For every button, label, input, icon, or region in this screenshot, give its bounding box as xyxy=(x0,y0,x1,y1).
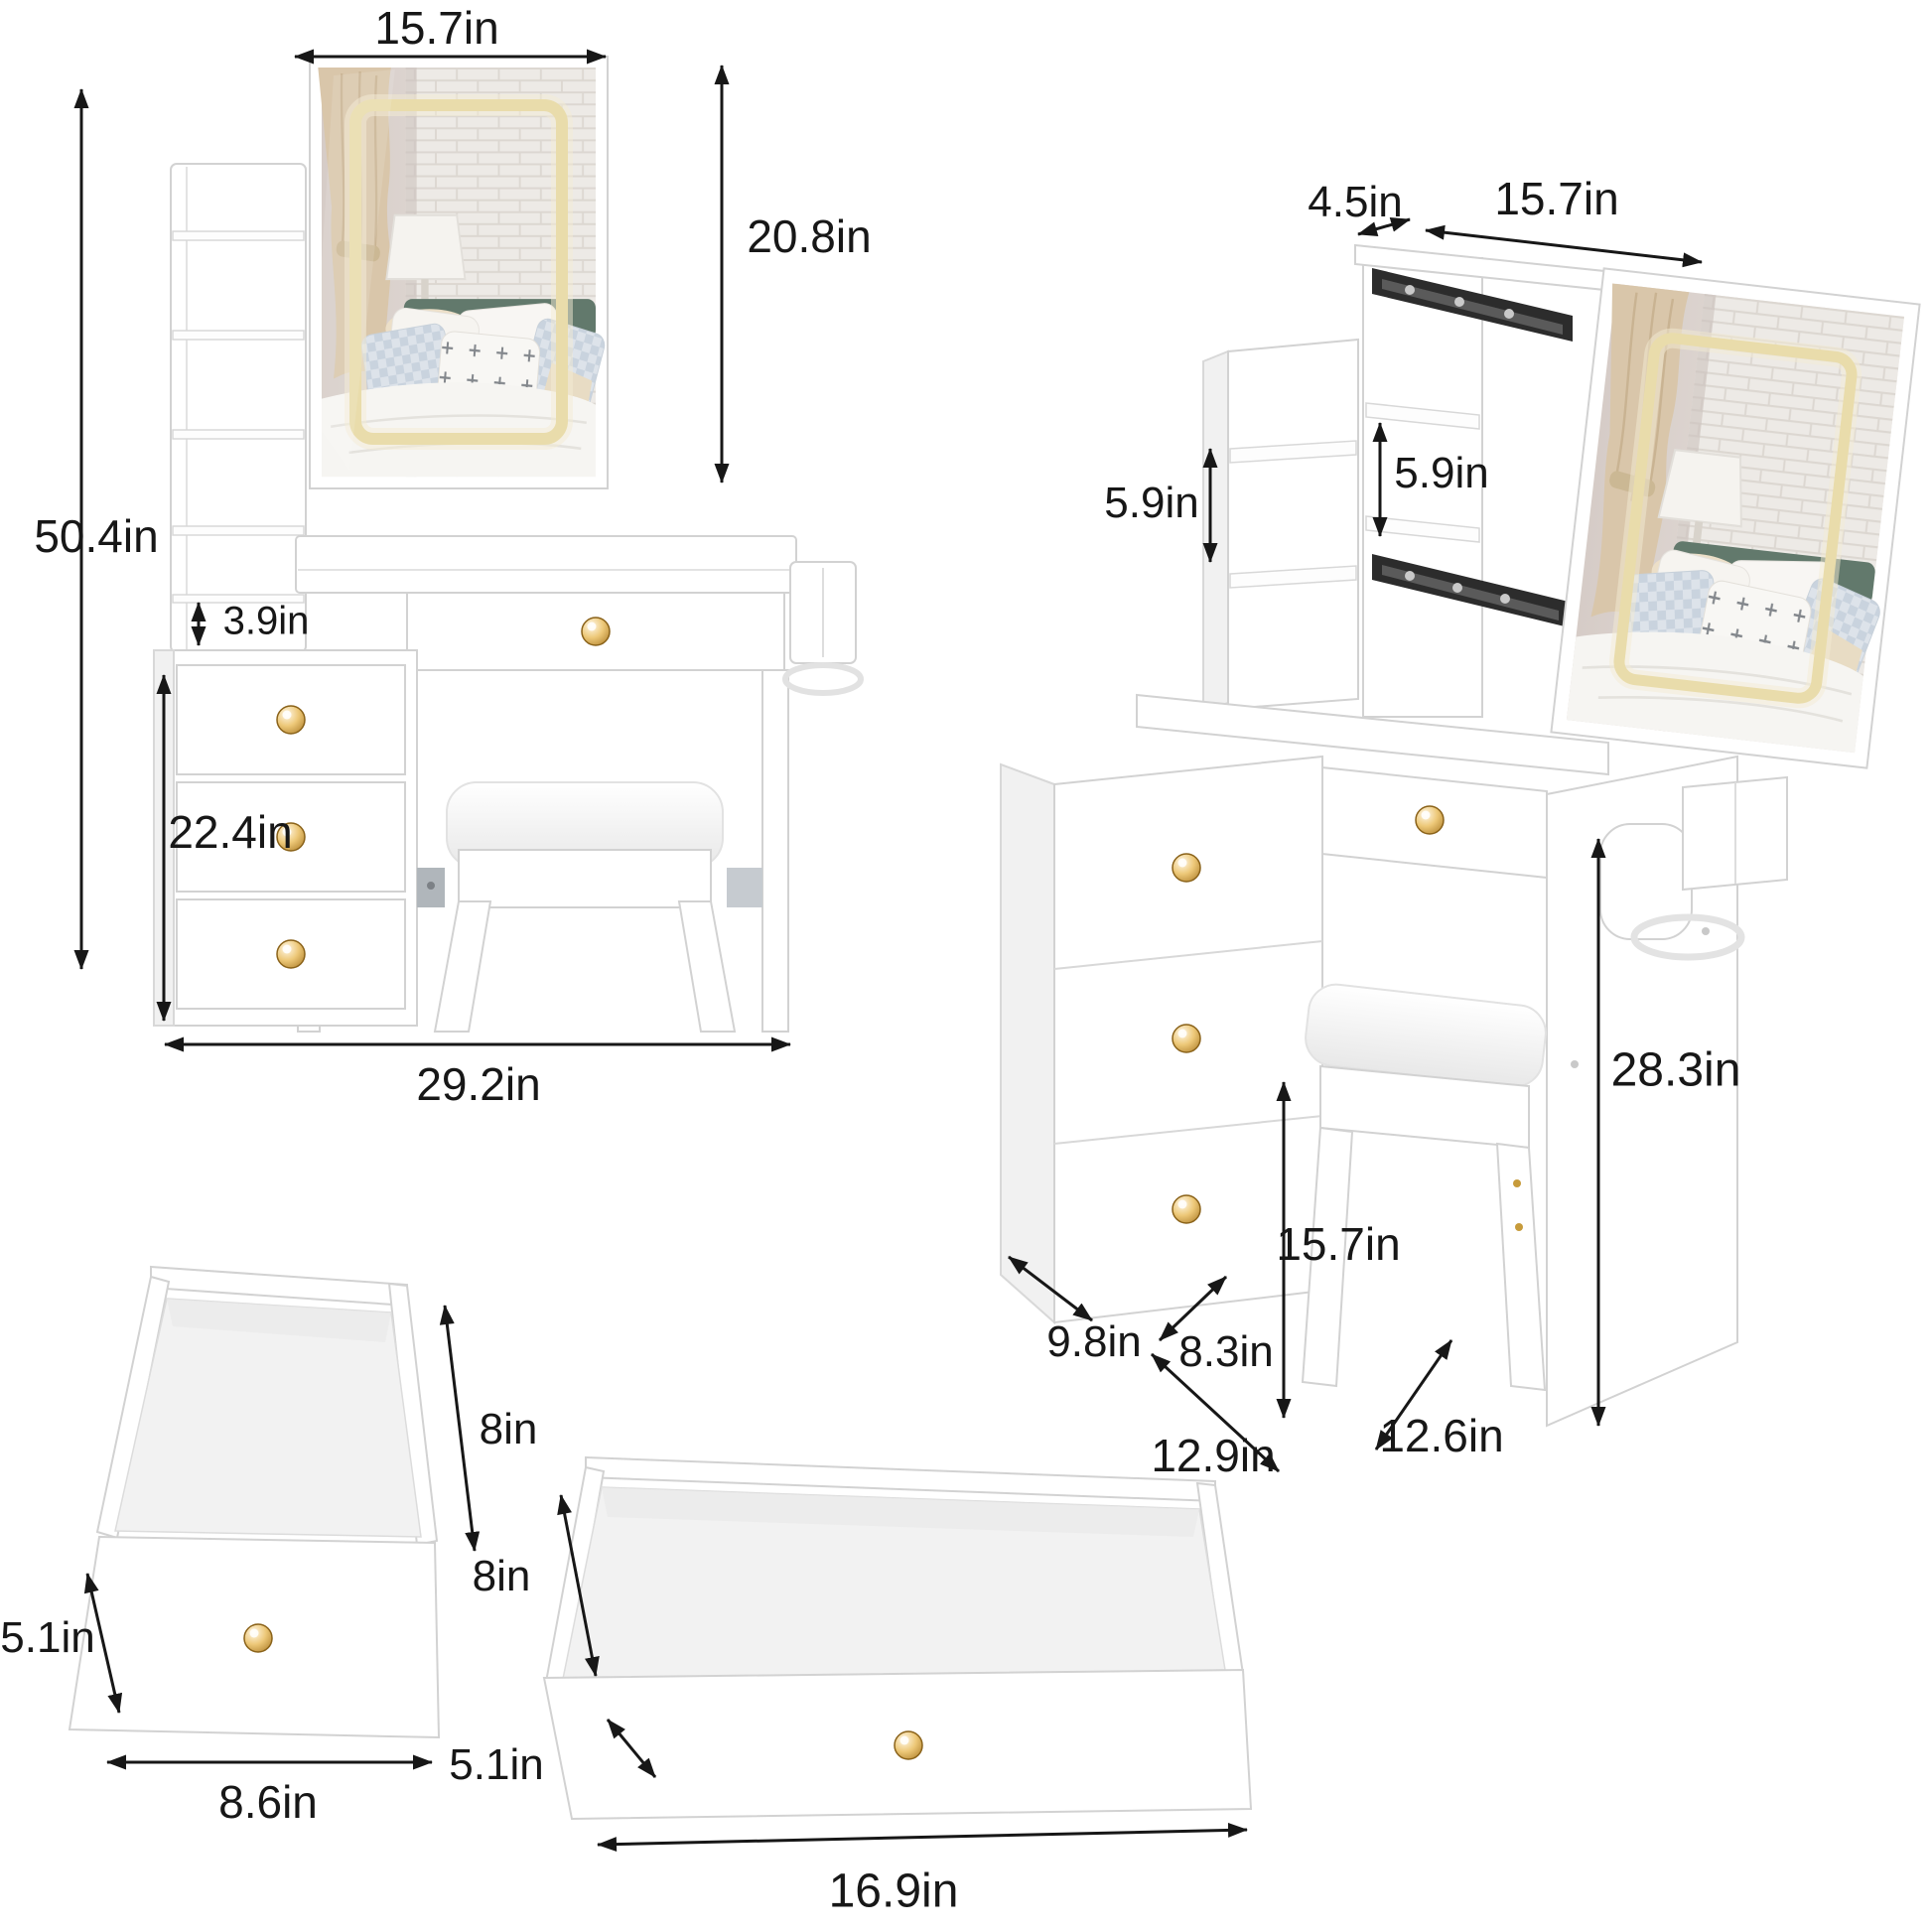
dim-label-large-drawer-depth: 8in xyxy=(473,1552,531,1601)
dim-label-side-left-shelf-gap: 5.9in xyxy=(1104,479,1198,528)
diagram-art xyxy=(0,0,1932,1932)
dim-label-side-panel-depth: 12.6in xyxy=(1379,1409,1503,1462)
tower-side-panel xyxy=(1203,351,1228,711)
large-drawer-art xyxy=(544,1457,1251,1845)
small-drawer-art xyxy=(69,1267,475,1762)
dim-label-front-total-width: 29.2in xyxy=(416,1057,540,1111)
dim-label-side-base-width: 12.9in xyxy=(1151,1429,1275,1482)
dim-arrow-small-depth xyxy=(445,1306,475,1551)
side-caddy xyxy=(785,562,861,693)
desk-right-leg xyxy=(762,670,788,1032)
shelf-tower xyxy=(1228,340,1358,709)
front-view-art xyxy=(81,57,861,1044)
mirror xyxy=(310,57,608,488)
dim-label-front-mirror-height: 20.8in xyxy=(747,209,871,263)
desk-top xyxy=(296,536,796,593)
dim-label-side-desk-height: 28.3in xyxy=(1611,1043,1741,1098)
stool xyxy=(1303,982,1549,1390)
hair-dryer-holder-ring xyxy=(785,665,861,693)
drawer-knob xyxy=(277,940,305,968)
dim-label-large-drawer-front-height: 5.1in xyxy=(449,1740,543,1790)
dim-label-side-top-width: 15.7in xyxy=(1494,172,1618,225)
dim-label-large-drawer-width: 16.9in xyxy=(829,1864,959,1919)
drawer-knob xyxy=(582,618,610,645)
dim-label-front-total-height: 50.4in xyxy=(34,509,158,563)
dim-label-side-mirror-shelf-gap: 5.9in xyxy=(1394,449,1488,498)
dim-arrow-large-width xyxy=(598,1830,1247,1845)
dim-label-front-cabinet-height: 22.4in xyxy=(168,805,292,859)
side-view-art xyxy=(1001,219,1920,1471)
drawer-knob xyxy=(1416,806,1444,834)
dim-label-small-drawer-width: 8.6in xyxy=(218,1775,318,1829)
shelf-tower xyxy=(171,164,306,652)
dim-label-front-shelf-gap: 3.9in xyxy=(223,600,310,644)
drawer-knob xyxy=(1173,1195,1200,1223)
cabinet-side-panel xyxy=(1001,764,1054,1322)
drawer-knob xyxy=(277,706,305,734)
sliding-mirror xyxy=(1551,268,1919,767)
dim-label-side-leg-clearance: 15.7in xyxy=(1276,1217,1400,1271)
stool xyxy=(417,782,762,1032)
drawer-knob xyxy=(244,1624,272,1652)
vanity-dimensions-diagram: 15.7in 20.8in 50.4in 3.9in 22.4in 29.2in… xyxy=(0,0,1932,1932)
drawer-knob xyxy=(1173,854,1200,882)
dim-label-side-stool-depth: 8.3in xyxy=(1178,1327,1273,1377)
dim-label-small-drawer-depth: 8in xyxy=(480,1405,538,1454)
dim-label-front-mirror-width: 15.7in xyxy=(374,1,498,55)
dim-label-small-drawer-front-height: 5.1in xyxy=(0,1613,94,1663)
drawer-knob xyxy=(1173,1025,1200,1052)
dim-label-side-top-depth: 4.5in xyxy=(1308,178,1402,227)
drawer-knob xyxy=(895,1731,922,1759)
dim-label-side-cabinet-depth: 9.8in xyxy=(1046,1317,1141,1367)
